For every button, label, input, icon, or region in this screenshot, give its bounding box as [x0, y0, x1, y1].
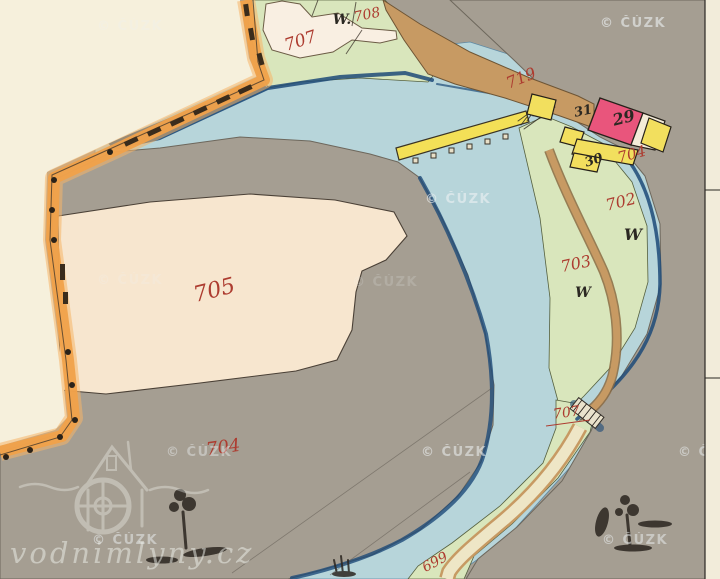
cuzk-watermark: © ČÚZK — [600, 15, 666, 31]
map-canvas: 707 W. 708 719 31 29 30 704 702 W 703 W … — [0, 0, 720, 579]
meadow-mark-702: W — [624, 225, 644, 244]
cuzk-watermark: © ČÚZK — [602, 532, 668, 548]
cuzk-watermark: © ČÚZK — [166, 444, 232, 460]
cuzk-watermark: © ČÚZK — [352, 274, 418, 290]
site-watermark-text: vodnimlyny.cz — [10, 536, 254, 570]
cuzk-watermark: © ČÚZK — [97, 272, 163, 288]
cuzk-watermark: © ČÚZK — [97, 18, 163, 34]
cadastral-map-scan: 707 W. 708 719 31 29 30 704 702 W 703 W … — [0, 0, 720, 579]
sheet-margin — [705, 0, 720, 579]
meadow-mark-703: W — [575, 285, 592, 301]
cuzk-watermark: © ČÚZK — [421, 444, 487, 460]
meadow-mark-708: W. — [333, 12, 351, 28]
cuzk-watermark: © ČÚZK — [425, 191, 491, 207]
